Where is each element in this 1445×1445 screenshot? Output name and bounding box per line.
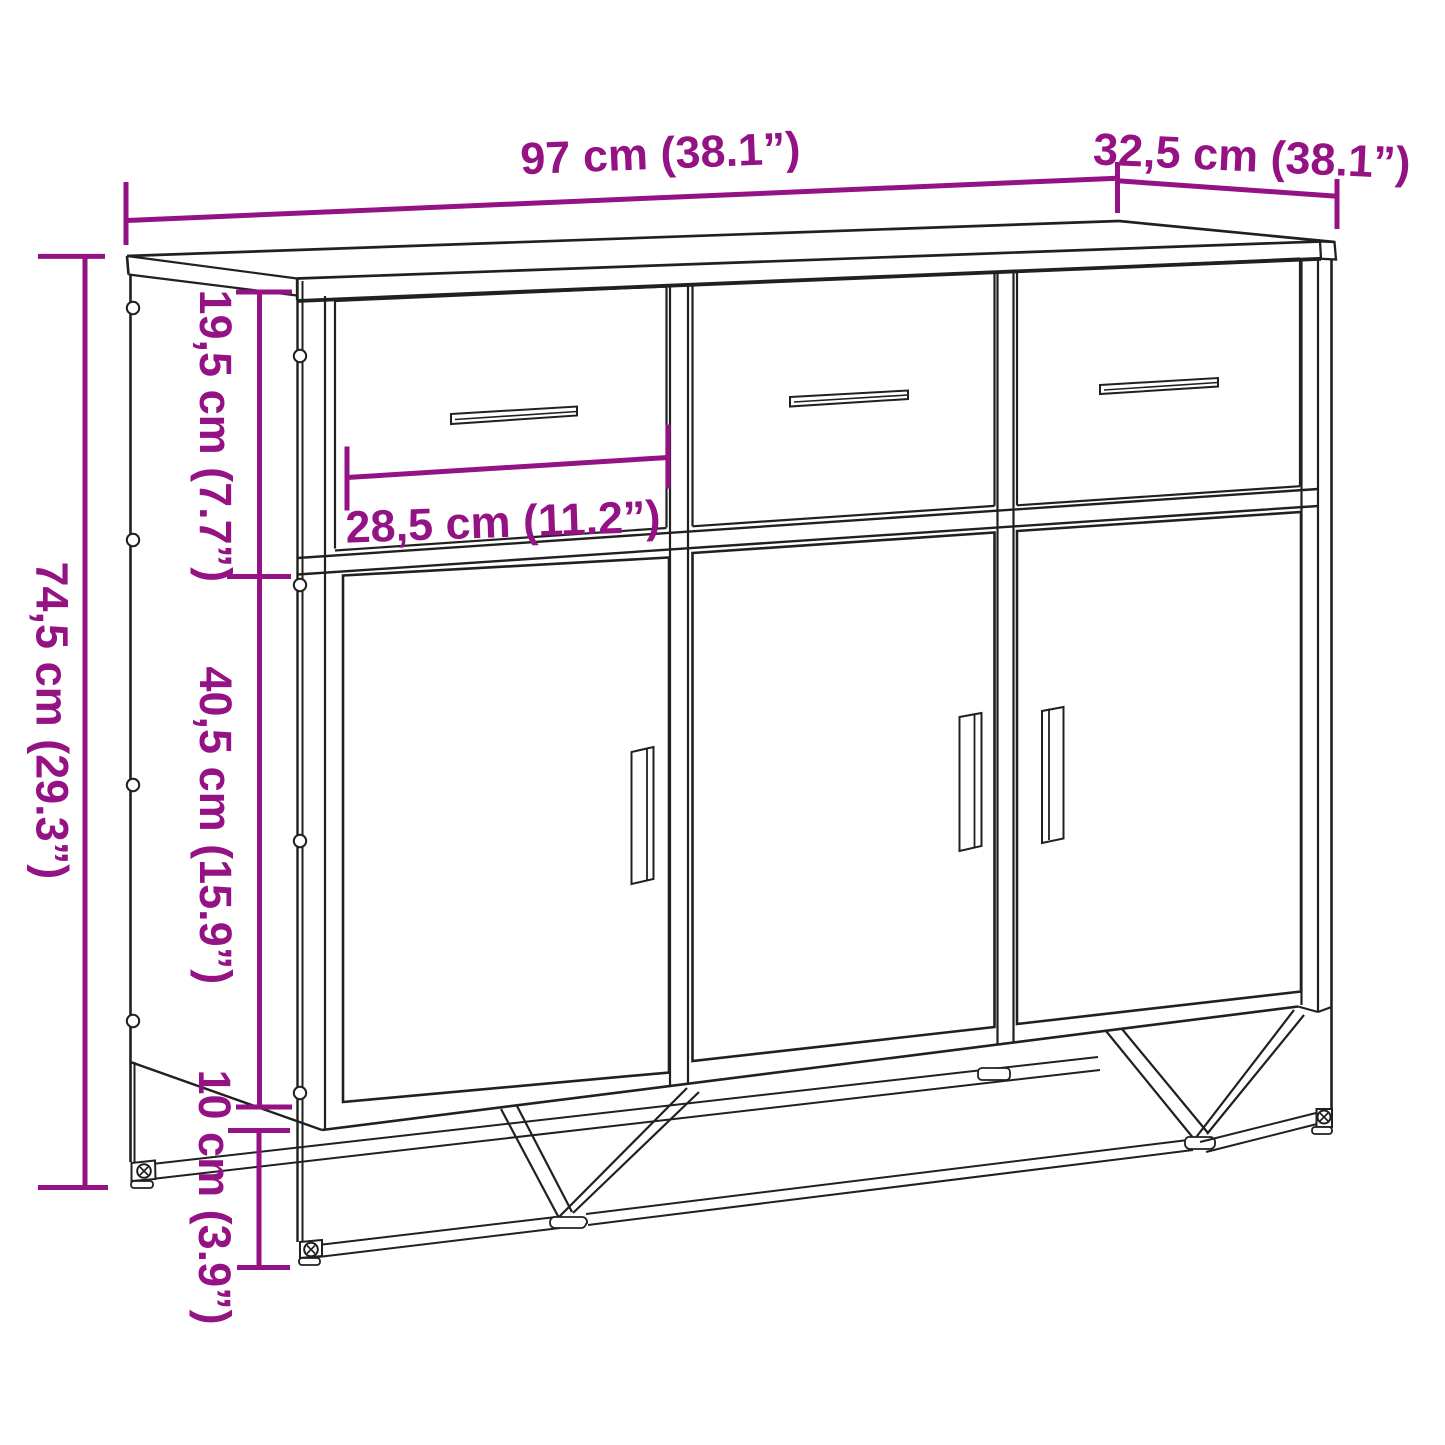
svg-text:10 cm (3.9”): 10 cm (3.9”) [189,1070,240,1325]
svg-text:74,5 cm (29.3”): 74,5 cm (29.3”) [27,562,78,880]
svg-text:19,5 cm (7.7”): 19,5 cm (7.7”) [190,290,241,583]
svg-text:40,5 cm (15.9”): 40,5 cm (15.9”) [190,667,241,985]
